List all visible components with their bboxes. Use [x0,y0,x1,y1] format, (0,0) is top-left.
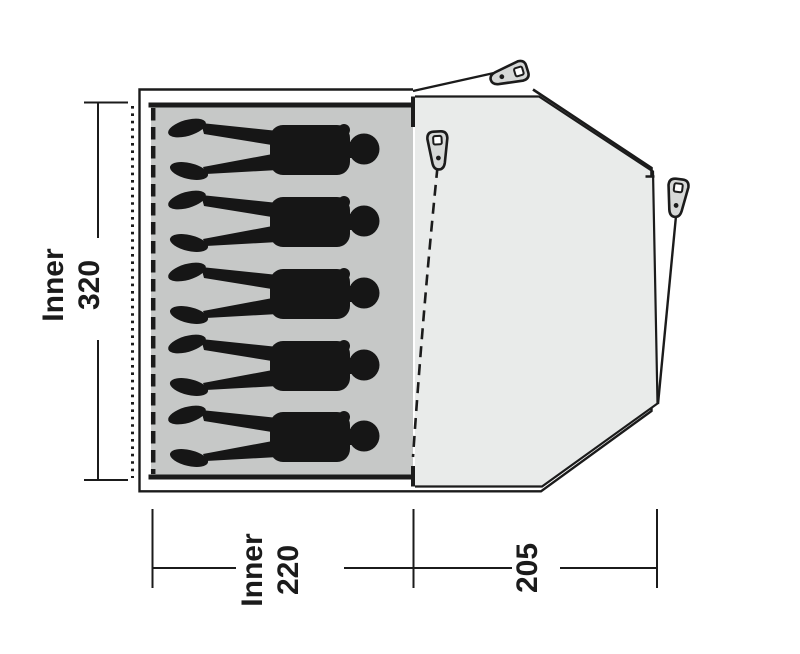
porch-depth-label-value: 205 [511,543,544,593]
dimension-inner-width: Inner 220 [153,509,414,607]
inner-depth-label-word: Inner [37,248,70,322]
inner-width-label-word: Inner [236,533,269,607]
peg-icon [665,178,689,218]
peg-icon [488,59,530,89]
tent-floorplan-diagram: Inner 320 Inner [0,0,800,654]
porch-floor [415,97,658,487]
floorplan-canvas: Inner 320 Inner [0,0,800,654]
inner-depth-label-value: 320 [73,260,106,310]
porch-section [413,90,658,487]
guyline-right [658,216,676,404]
dimension-porch-depth: 205 [414,509,658,593]
guyline-top [413,73,494,91]
inner-width-label-value: 220 [272,545,305,595]
dimension-inner-depth: Inner 320 [37,103,128,481]
